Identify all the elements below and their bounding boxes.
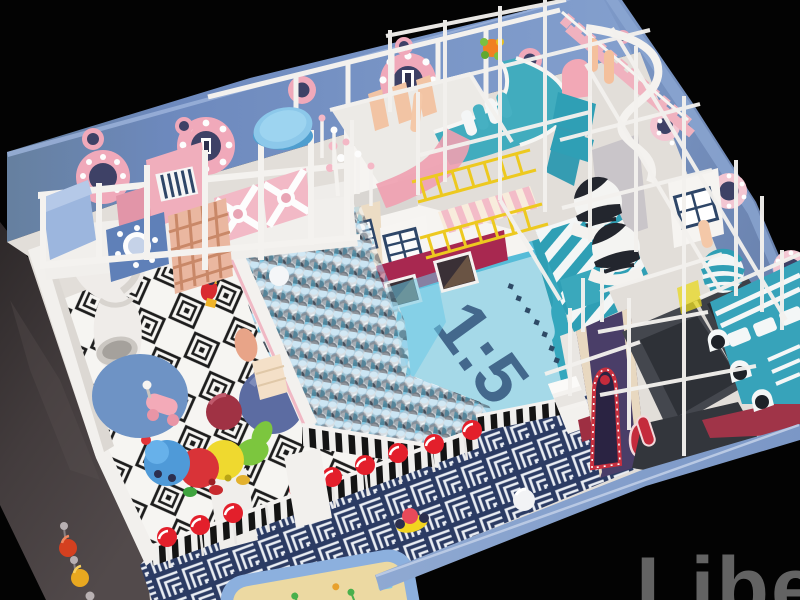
svg-text:Libe: Libe <box>636 540 800 600</box>
